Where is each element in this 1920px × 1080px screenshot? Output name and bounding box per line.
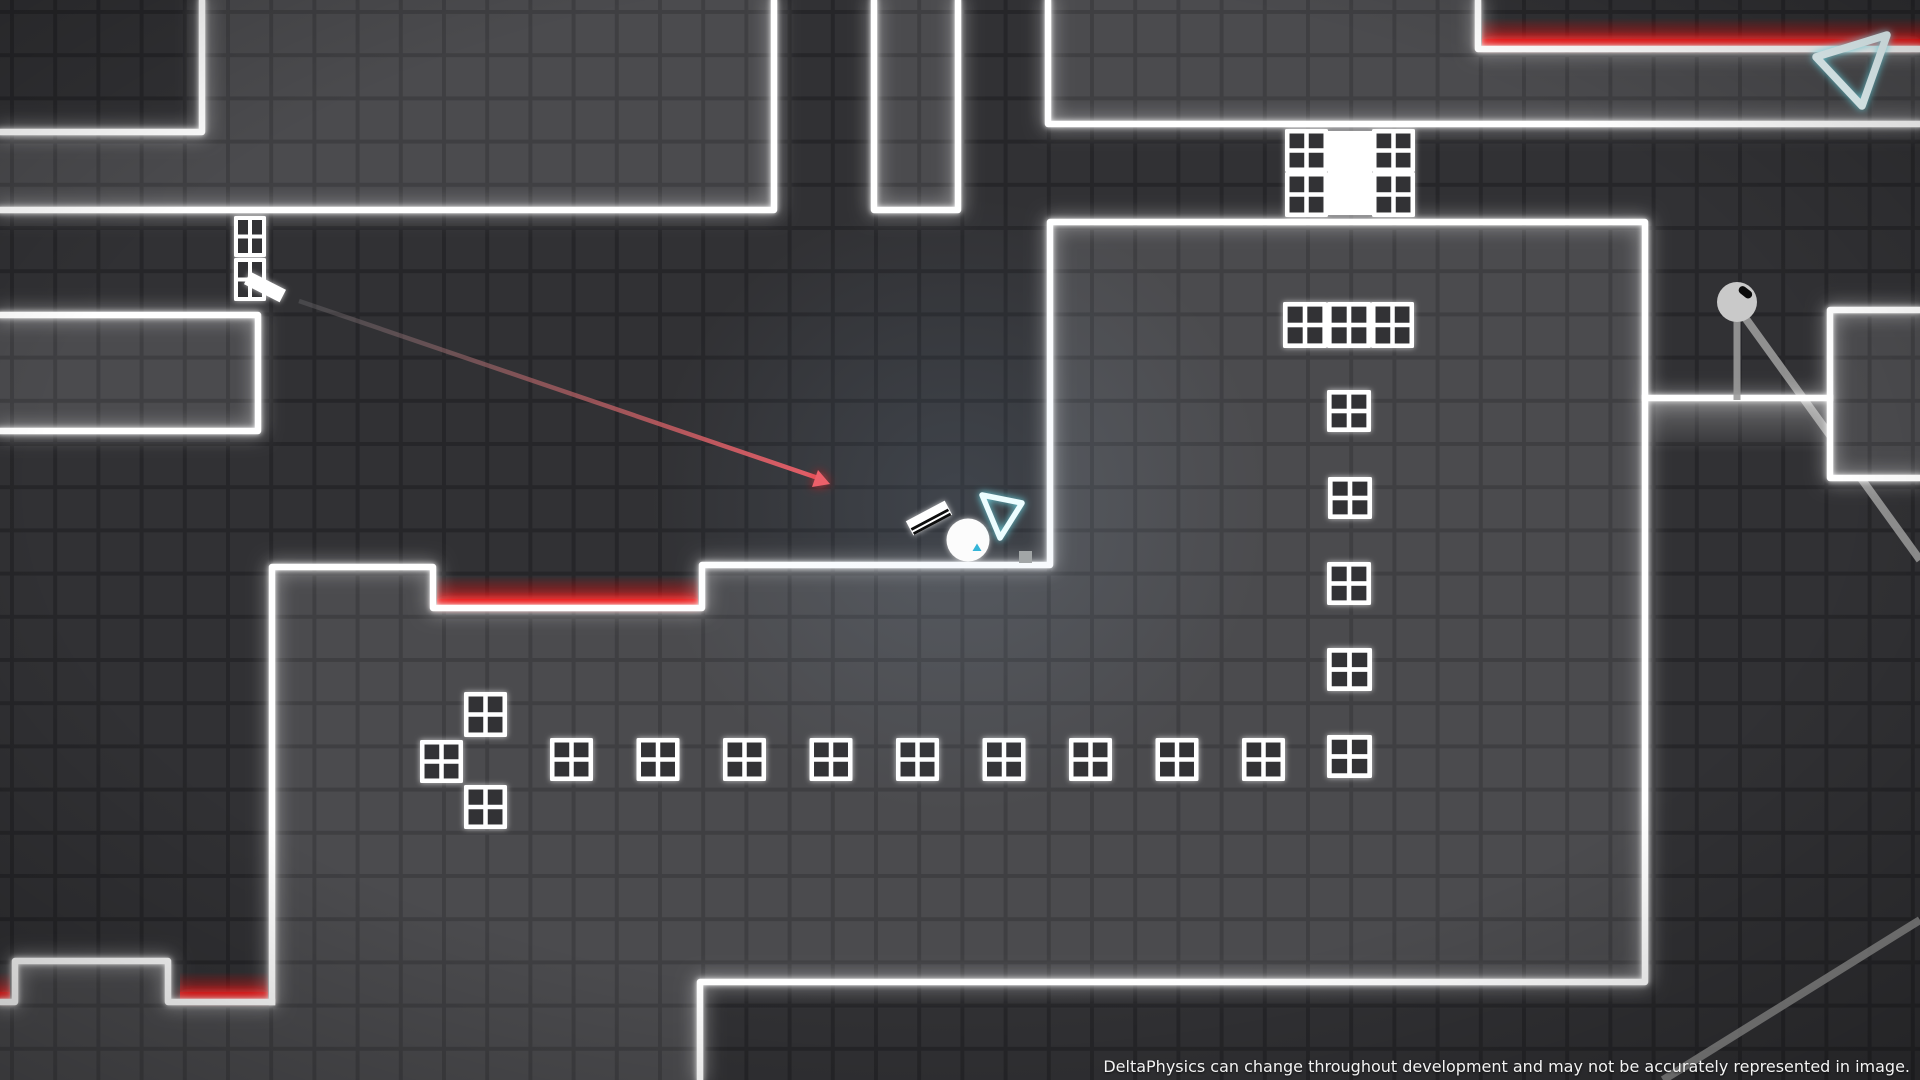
window-block-cell — [1377, 177, 1392, 193]
window-block — [1372, 172, 1415, 217]
window-block-cell — [1332, 672, 1347, 686]
debris-square — [1019, 551, 1032, 563]
window-block-cell — [1247, 762, 1262, 777]
window-block-cell — [1351, 395, 1366, 409]
platform-mid-left — [0, 315, 258, 431]
window-block-cell — [574, 762, 589, 777]
window-block — [464, 692, 507, 737]
window-block — [1327, 735, 1372, 778]
window-block — [1327, 302, 1371, 348]
ledge-glow-fade — [1647, 401, 1830, 453]
window-block-cell — [1309, 177, 1324, 193]
window-block — [464, 785, 507, 829]
window-block-cell — [1351, 586, 1366, 601]
window-block — [1372, 129, 1415, 172]
window-block-cell — [1395, 327, 1410, 343]
window-block-cell — [1290, 134, 1305, 149]
window-block-cell — [1376, 327, 1391, 343]
window-block — [1327, 390, 1371, 432]
window-block-cell — [488, 717, 503, 733]
window-block-cell — [1332, 413, 1347, 427]
window-block-cell — [425, 745, 440, 760]
window-block-cell — [747, 743, 762, 758]
window-block-cell — [1307, 307, 1322, 323]
window-block — [1327, 648, 1372, 691]
window-block-cell — [1352, 740, 1367, 754]
window-block-cell — [574, 743, 589, 758]
window-block — [1327, 562, 1371, 605]
window-block — [637, 738, 680, 781]
window-block-cell — [1352, 672, 1367, 686]
window-block-cell — [1396, 153, 1411, 168]
window-block-cell — [1160, 743, 1175, 758]
pendulum-ball[interactable] — [1717, 282, 1757, 322]
window-block-cell — [1309, 153, 1324, 168]
window-block-cell — [1332, 567, 1347, 582]
window-block-cell — [555, 743, 570, 758]
game-scene — [0, 0, 1920, 1080]
window-block-cell — [1332, 759, 1347, 773]
window-block — [1242, 738, 1285, 781]
window-block-cell — [469, 697, 484, 713]
window-block — [550, 738, 593, 781]
window-block-cell — [1332, 307, 1347, 323]
door[interactable] — [1328, 131, 1372, 215]
window-block-cell — [728, 743, 743, 758]
window-block-cell — [1377, 153, 1392, 168]
window-block-cell — [1333, 482, 1348, 496]
window-block-cell — [1288, 307, 1303, 323]
window-block-cell — [747, 762, 762, 777]
window-block — [723, 738, 766, 781]
window-block-cell — [728, 762, 743, 777]
window-block-cell — [1351, 413, 1366, 427]
window-block-cell — [488, 809, 503, 824]
window-block — [234, 216, 266, 257]
window-block — [420, 740, 463, 783]
window-block-cell — [641, 762, 656, 777]
window-block-cell — [660, 743, 675, 758]
window-block-cell — [444, 764, 459, 779]
window-block-cell — [1179, 762, 1194, 777]
window-block-cell — [1247, 743, 1262, 758]
window-block-cell — [1352, 759, 1367, 773]
window-block-cell — [238, 220, 248, 235]
window-block-cell — [1351, 307, 1366, 323]
window-block-cell — [1332, 327, 1347, 343]
window-block-cell — [1377, 134, 1392, 149]
window-block — [1156, 738, 1199, 781]
window-block-cell — [1396, 134, 1411, 149]
window-block-cell — [555, 762, 570, 777]
window-block — [1328, 477, 1372, 519]
window-block-cell — [1179, 743, 1194, 758]
window-block-cell — [425, 764, 440, 779]
window-block-cell — [1290, 197, 1305, 213]
window-block-cell — [1352, 500, 1367, 514]
window-block-cell — [238, 239, 248, 254]
window-block-cell — [1376, 307, 1391, 323]
window-block-cell — [1266, 762, 1281, 777]
window-block-cell — [1332, 395, 1347, 409]
window-block-cell — [1352, 482, 1367, 496]
window-block-cell — [1377, 197, 1392, 213]
window-block-cell — [469, 809, 484, 824]
window-block-cell — [252, 239, 262, 254]
hazard-fade — [0, 972, 10, 995]
ceiling-inset-passage — [0, 0, 202, 132]
window-block-cell — [488, 790, 503, 805]
window-block-cell — [1290, 177, 1305, 193]
window-block-cell — [660, 762, 675, 777]
window-block-cell — [1332, 740, 1347, 754]
window-block-cell — [469, 717, 484, 733]
window-block — [1283, 302, 1327, 348]
hazard-fade — [1482, 18, 1920, 42]
window-block-cell — [1309, 197, 1324, 213]
window-block-cell — [238, 262, 248, 278]
window-block-cell — [1307, 327, 1322, 343]
hazard-fade — [180, 972, 268, 995]
game-viewport[interactable]: DeltaPhysics can change throughout devel… — [0, 0, 1920, 1080]
window-block-cell — [1332, 653, 1347, 667]
player-ball[interactable] — [947, 519, 990, 562]
player-ambient-glow — [648, 195, 1268, 815]
window-block-cell — [469, 790, 484, 805]
window-block-cell — [1332, 586, 1347, 601]
disclaimer-text: DeltaPhysics can change throughout devel… — [1103, 1057, 1910, 1077]
window-block — [1285, 172, 1328, 217]
window-block-cell — [641, 743, 656, 758]
window-block — [1285, 129, 1328, 172]
window-block-cell — [1352, 653, 1367, 667]
window-block-cell — [1290, 153, 1305, 168]
window-block — [1371, 302, 1414, 348]
window-block-cell — [1288, 327, 1303, 343]
window-block-cell — [1395, 307, 1410, 323]
window-block-cell — [1396, 177, 1411, 193]
window-block-cell — [1396, 197, 1411, 213]
window-block-cell — [1333, 500, 1348, 514]
window-block-cell — [1351, 567, 1366, 582]
window-block-cell — [1160, 762, 1175, 777]
window-block-cell — [252, 220, 262, 235]
window-block-cell — [488, 697, 503, 713]
window-block-cell — [1309, 134, 1324, 149]
window-block-cell — [1266, 743, 1281, 758]
platform-right-edge — [1830, 310, 1920, 478]
window-block-cell — [1351, 327, 1366, 343]
window-block-cell — [444, 745, 459, 760]
platform-ceiling-column — [874, 0, 958, 210]
